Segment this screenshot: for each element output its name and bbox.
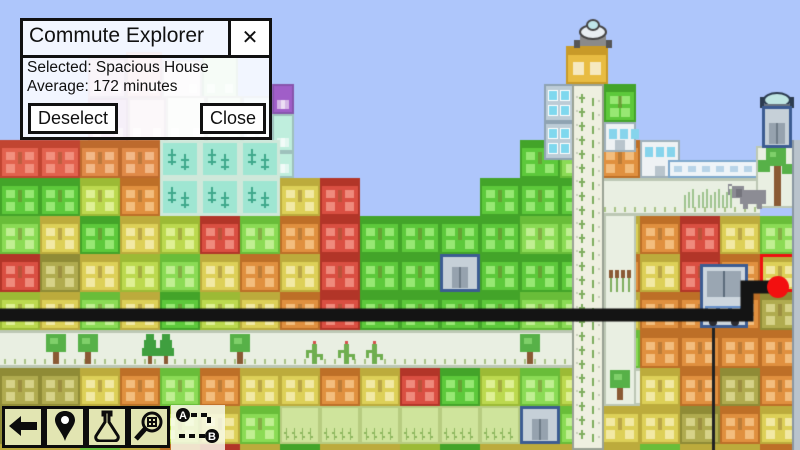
svg-text:A: A [179, 410, 187, 422]
back-arrow-icon [7, 411, 39, 444]
research-button[interactable] [86, 406, 128, 448]
inspect-building-button[interactable] [128, 406, 170, 448]
game-stage: Commute Explorer ✕ Selected: Spacious Ho… [0, 0, 800, 450]
locate-home-button[interactable] [44, 406, 86, 448]
average-commute-label: Average: 172 minutes [23, 77, 269, 96]
deselect-button[interactable]: Deselect [28, 103, 118, 134]
commute-explorer-dialog: Commute Explorer ✕ Selected: Spacious Ho… [20, 18, 272, 140]
magnifier-building-icon [133, 410, 165, 445]
commute-route-tool[interactable]: A B [171, 405, 225, 450]
selected-building-label: Selected: Spacious House [23, 58, 269, 77]
dialog-title-bar: Commute Explorer ✕ [23, 21, 269, 58]
close-button[interactable]: Close [200, 103, 266, 134]
map-pin-icon [52, 410, 78, 445]
svg-text:B: B [208, 431, 216, 443]
back-button[interactable] [2, 406, 44, 448]
dialog-title: Commute Explorer [29, 24, 204, 48]
flask-icon [92, 410, 122, 445]
route-a-to-b-icon: A B [175, 406, 221, 450]
bottom-toolbar: A B [2, 406, 225, 450]
close-x-button[interactable]: ✕ [228, 21, 269, 55]
